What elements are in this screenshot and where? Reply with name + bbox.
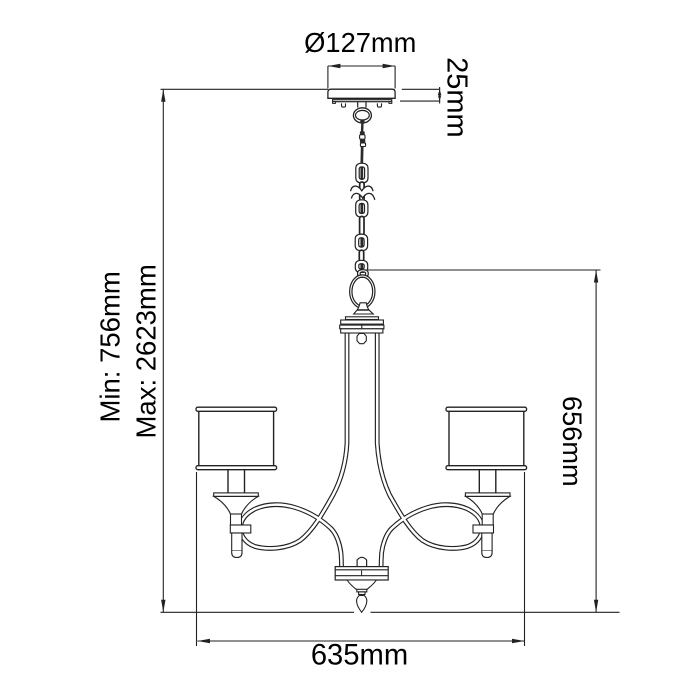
svg-text:Max: 2623mm: Max: 2623mm bbox=[131, 264, 162, 438]
svg-text:Min: 756mm: Min: 756mm bbox=[95, 271, 126, 422]
svg-text:25mm: 25mm bbox=[440, 57, 472, 138]
svg-text:635mm: 635mm bbox=[311, 640, 408, 672]
svg-text:Ø127mm: Ø127mm bbox=[304, 27, 416, 58]
svg-text:656mm: 656mm bbox=[557, 396, 588, 487]
